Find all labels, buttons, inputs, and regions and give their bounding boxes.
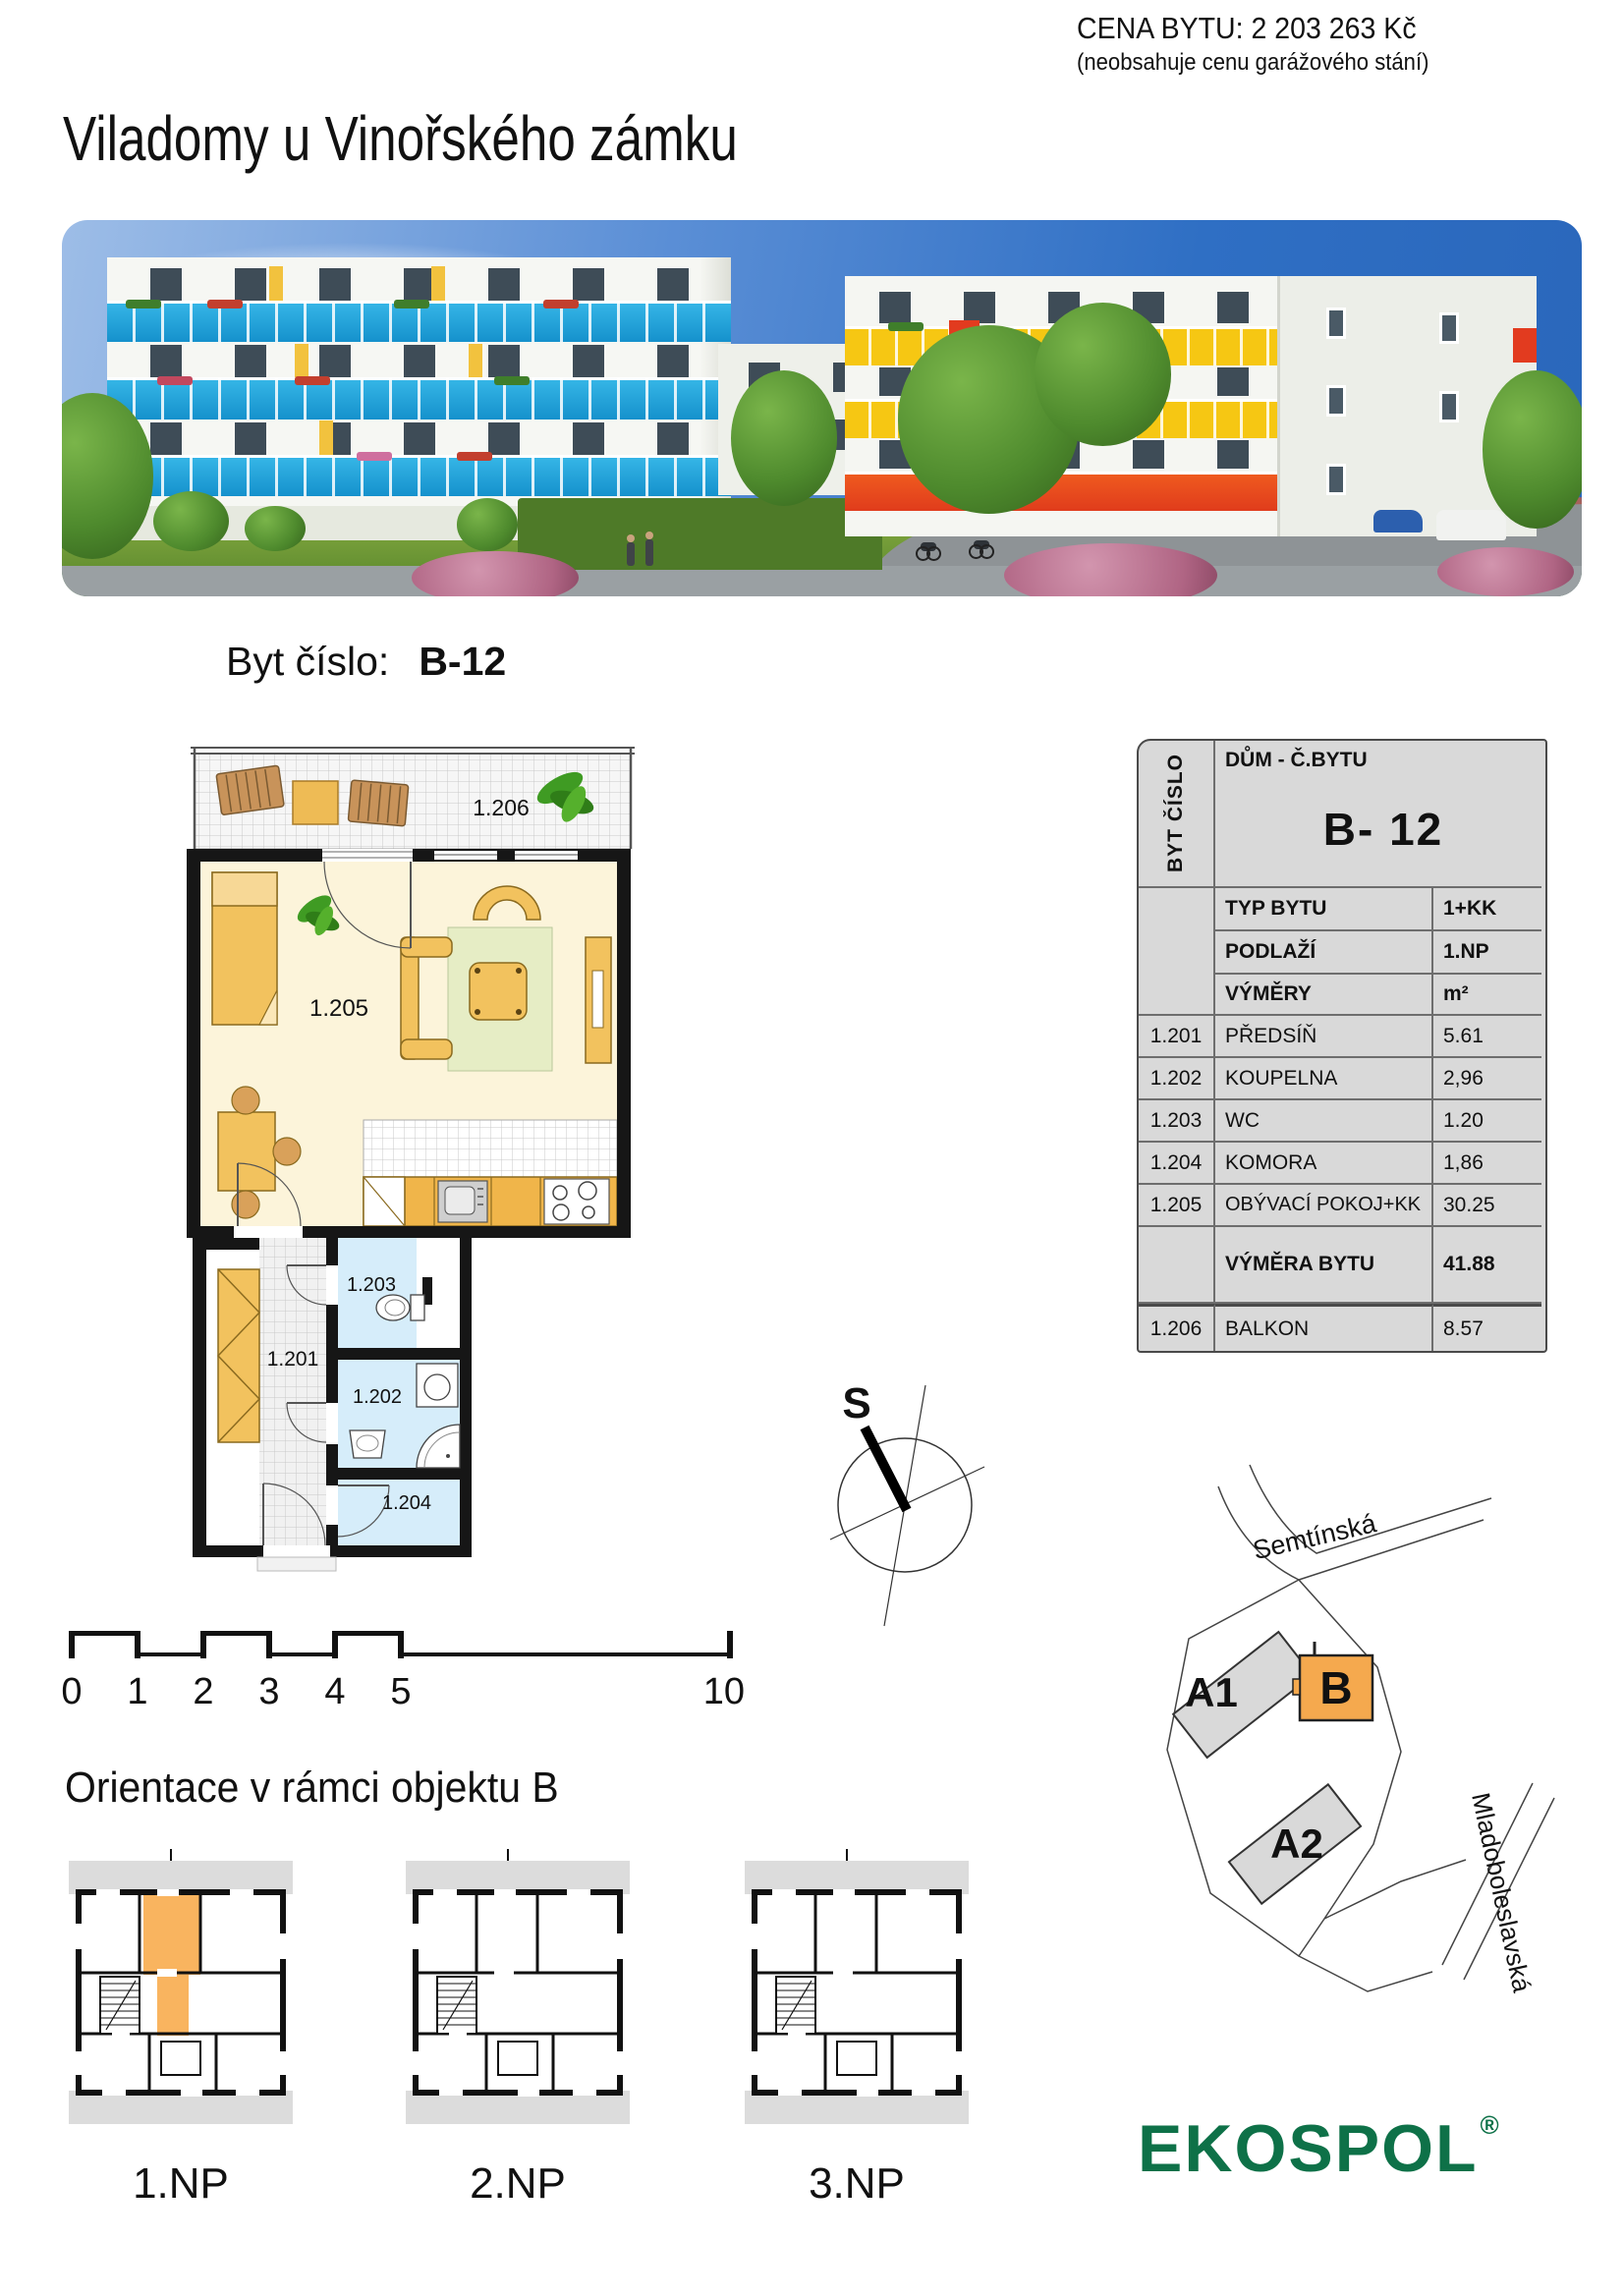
registered-mark: ®	[1481, 2110, 1501, 2140]
floor	[107, 342, 730, 419]
balcony-room: 1.206	[191, 748, 635, 849]
meta-value: 1+KK	[1433, 888, 1541, 931]
room-label-bathroom: 1.202	[353, 1386, 402, 1408]
ekospol-logo: EKOSPOL®	[1138, 2110, 1501, 2187]
page: CENA BYTU: 2 203 263 Kč (neobsahuje cenu…	[0, 0, 1624, 2296]
room-code: 1.205	[1139, 1185, 1215, 1227]
compass-north-label: S	[842, 1379, 870, 1428]
price-line: CENA BYTU: 2 203 263 Kč	[1077, 10, 1428, 48]
washer	[417, 1364, 458, 1407]
meta-label: TYP BYTU	[1215, 888, 1433, 931]
building-a1-label: A1	[1185, 1669, 1238, 1715]
price-block: CENA BYTU: 2 203 263 Kč (neobsahuje cenu…	[1077, 10, 1460, 78]
floor	[107, 420, 730, 496]
compass-needle	[865, 1428, 907, 1510]
front-path	[62, 566, 1582, 596]
floor-plan: 1.206	[177, 727, 639, 1572]
room-name: OBÝVACÍ POKOJ+KK	[1215, 1185, 1433, 1227]
room-name: KOMORA	[1215, 1143, 1433, 1185]
mini-plan-1np	[61, 1845, 301, 2140]
pink-bush	[412, 551, 579, 596]
lounger	[348, 780, 408, 826]
apartment-label: Byt číslo:	[226, 639, 389, 684]
scale-end-label: 10 m	[703, 1671, 755, 1712]
total-label: VÝMĚRA BYTU	[1215, 1227, 1433, 1304]
toilet	[376, 1295, 424, 1320]
shrub	[245, 506, 306, 551]
table-empty-cell	[1139, 1227, 1215, 1304]
floor-label-1np: 1.NP	[61, 2159, 301, 2209]
compass: S	[806, 1361, 1012, 1636]
hedge	[518, 498, 882, 570]
table-corner-header: BYT ČÍSLO	[1139, 741, 1215, 888]
table-unit-number: B- 12	[1225, 772, 1541, 886]
room-area: 30.25	[1433, 1185, 1541, 1227]
table-header-label: DŮM - Č.BYTU	[1225, 749, 1541, 772]
kitchen	[364, 1120, 617, 1226]
site-map: A1 B A2 Semtínská Mladoboleslavská	[1071, 1459, 1562, 2068]
room-code: 1.203	[1139, 1100, 1215, 1143]
price-note: (neobsahuje cenu garážového stání)	[1077, 48, 1428, 78]
room-name: KOUPELNA	[1215, 1058, 1433, 1100]
pedestrian	[645, 539, 653, 566]
page-title: Viladomy u Vinořského zámku	[63, 102, 738, 175]
street-semtinska-label: Semtínská	[1250, 1508, 1379, 1565]
pedestrian	[627, 542, 635, 566]
tree	[731, 370, 837, 506]
hall-floor	[259, 1238, 326, 1545]
table-empty-cell	[1139, 888, 1215, 1016]
orientation-heading: Orientace v rámci objektu B	[65, 1764, 559, 1813]
table-header-cell: DŮM - Č.BYTU B- 12	[1215, 741, 1541, 888]
balcony-code: 1.206	[1139, 1304, 1215, 1351]
cyclist	[974, 540, 989, 549]
meta-label: VÝMĚRY	[1215, 975, 1433, 1016]
room-code: 1.201	[1139, 1016, 1215, 1058]
tree	[1483, 370, 1582, 529]
floor-label-3np: 3.NP	[737, 2159, 977, 2209]
mini-plan-2np	[398, 1845, 638, 2140]
shrub	[457, 498, 518, 551]
room-name: WC	[1215, 1100, 1433, 1143]
room-label-living: 1.205	[309, 995, 368, 1022]
apartment-info-table: BYT ČÍSLO DŮM - Č.BYTU B- 12 TYP BYTU 1+…	[1137, 739, 1547, 1353]
pink-bush	[1004, 543, 1217, 596]
shrub	[153, 491, 229, 551]
street-mladoboleslavska-label: Mladoboleslavská	[1466, 1790, 1537, 1995]
scale-tick-label: 0	[61, 1671, 82, 1712]
balcony-name: BALKON	[1215, 1304, 1433, 1351]
cyclist	[921, 542, 936, 551]
logo-text: EKOSPOL	[1138, 2111, 1479, 2186]
balcony-area: 8.57	[1433, 1304, 1541, 1351]
room-area: 1.20	[1433, 1100, 1541, 1143]
meta-value: m²	[1433, 975, 1541, 1016]
scale-bar: 0 1 2 3 4 5 10 m	[57, 1621, 755, 1719]
balcony-table	[293, 781, 338, 824]
blue-car	[1373, 510, 1423, 532]
room-label-hall: 1.201	[267, 1348, 319, 1371]
scale-tick-label: 5	[390, 1671, 411, 1712]
white-car	[1436, 510, 1506, 540]
pink-bush	[1437, 547, 1574, 596]
meta-value: 1.NP	[1433, 931, 1541, 975]
scale-tick-label: 1	[127, 1671, 147, 1712]
project-rendering	[62, 220, 1582, 596]
tree	[1035, 303, 1171, 446]
room-area: 5.61	[1433, 1016, 1541, 1058]
room-name: PŘEDSÍŇ	[1215, 1016, 1433, 1058]
meta-label: PODLAŽÍ	[1215, 931, 1433, 975]
room-area: 2,96	[1433, 1058, 1541, 1100]
lower-wing: 1.201 1.203 1.202 1.204	[193, 1238, 472, 1571]
apartment-number-line: Byt číslo:B-12	[226, 639, 506, 685]
room-code: 1.202	[1139, 1058, 1215, 1100]
room-code: 1.204	[1139, 1143, 1215, 1185]
floor-label-2np: 2.NP	[398, 2159, 638, 2209]
scale-tick-label: 4	[324, 1671, 345, 1712]
total-value: 41.88	[1433, 1227, 1541, 1304]
room-label-wc: 1.203	[347, 1274, 396, 1296]
apartment-number: B-12	[419, 639, 506, 684]
left-building	[107, 257, 730, 506]
building-a2-label: A2	[1270, 1820, 1323, 1867]
room-label-storage: 1.204	[382, 1492, 431, 1514]
mini-plan-3np	[737, 1845, 977, 2140]
bathroom-sink	[350, 1430, 385, 1458]
wardrobe	[218, 1269, 259, 1442]
room-label-balcony: 1.206	[473, 795, 530, 820]
scale-tick-label: 2	[193, 1671, 213, 1712]
scale-tick-label: 3	[258, 1671, 279, 1712]
room-area: 1,86	[1433, 1143, 1541, 1185]
floor	[107, 265, 730, 342]
lounger	[216, 765, 284, 814]
building-b-label: B	[1319, 1662, 1352, 1713]
